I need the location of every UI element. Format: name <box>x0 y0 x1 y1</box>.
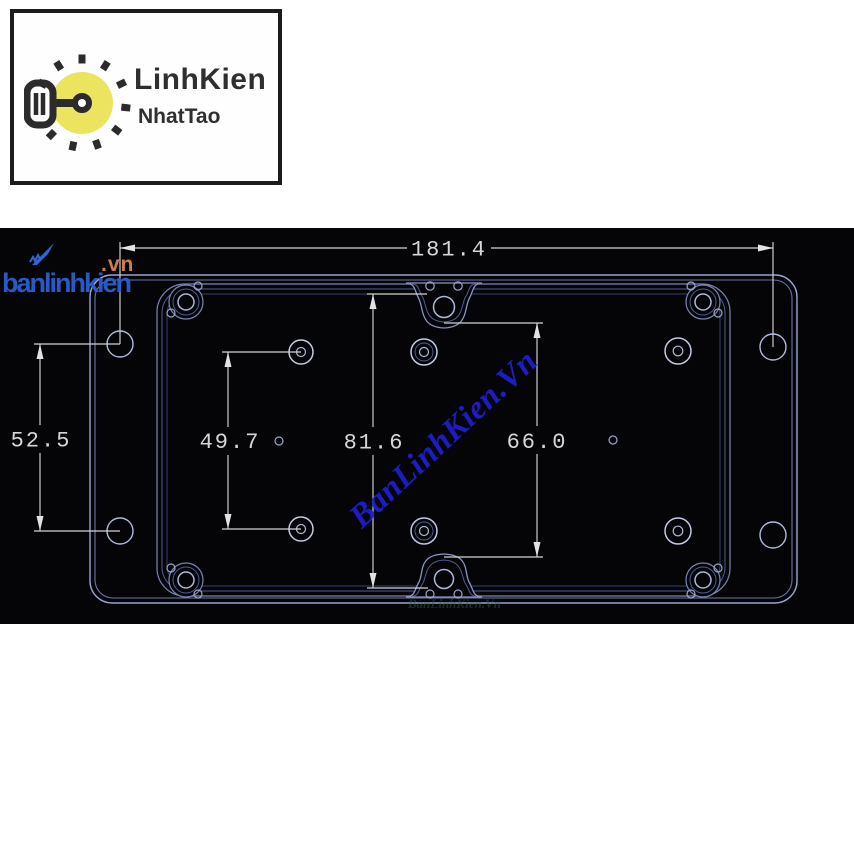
dimension-label: 66.0 <box>507 430 568 455</box>
swoosh-icon <box>28 241 56 267</box>
watermark-echo: BanLinhKien.Vn <box>408 596 501 612</box>
dimension-left-hole-spacing: 52.5 <box>11 344 120 531</box>
dimension-label: 81.6 <box>344 431 405 456</box>
mounting-hole <box>760 522 786 548</box>
brand-logo-card: LinhKien NhatTao <box>10 9 282 185</box>
corner-post <box>686 563 722 598</box>
brand-name: LinhKien <box>134 63 266 97</box>
top-center-tab <box>406 282 482 328</box>
bottom-center-tab <box>406 554 482 598</box>
key-ring <box>75 96 89 110</box>
dimension-boss-spacing: 49.7 <box>200 352 301 529</box>
pilot-hole <box>275 437 283 445</box>
brand-subname: NhatTao <box>138 106 266 128</box>
dimension-label: 49.7 <box>200 430 261 455</box>
lightbulb-key-icon <box>24 49 136 161</box>
product-image: LinhKien NhatTao <box>0 0 854 854</box>
technical-drawing: 181.4 52.5 49.7 <box>0 228 854 624</box>
brand-text: LinhKien NhatTao <box>134 63 266 128</box>
watermark-corner: .vn banlinhkien <box>0 238 190 318</box>
screw-boss <box>665 518 691 544</box>
screw-boss <box>665 338 691 364</box>
screw-boss <box>411 339 437 365</box>
watermark-corner-text: banlinhkien <box>2 268 130 299</box>
dimension-label: 52.5 <box>11 429 72 454</box>
screw-boss <box>411 518 437 544</box>
dimension-label: 181.4 <box>411 238 487 263</box>
pilot-hole <box>609 436 617 444</box>
